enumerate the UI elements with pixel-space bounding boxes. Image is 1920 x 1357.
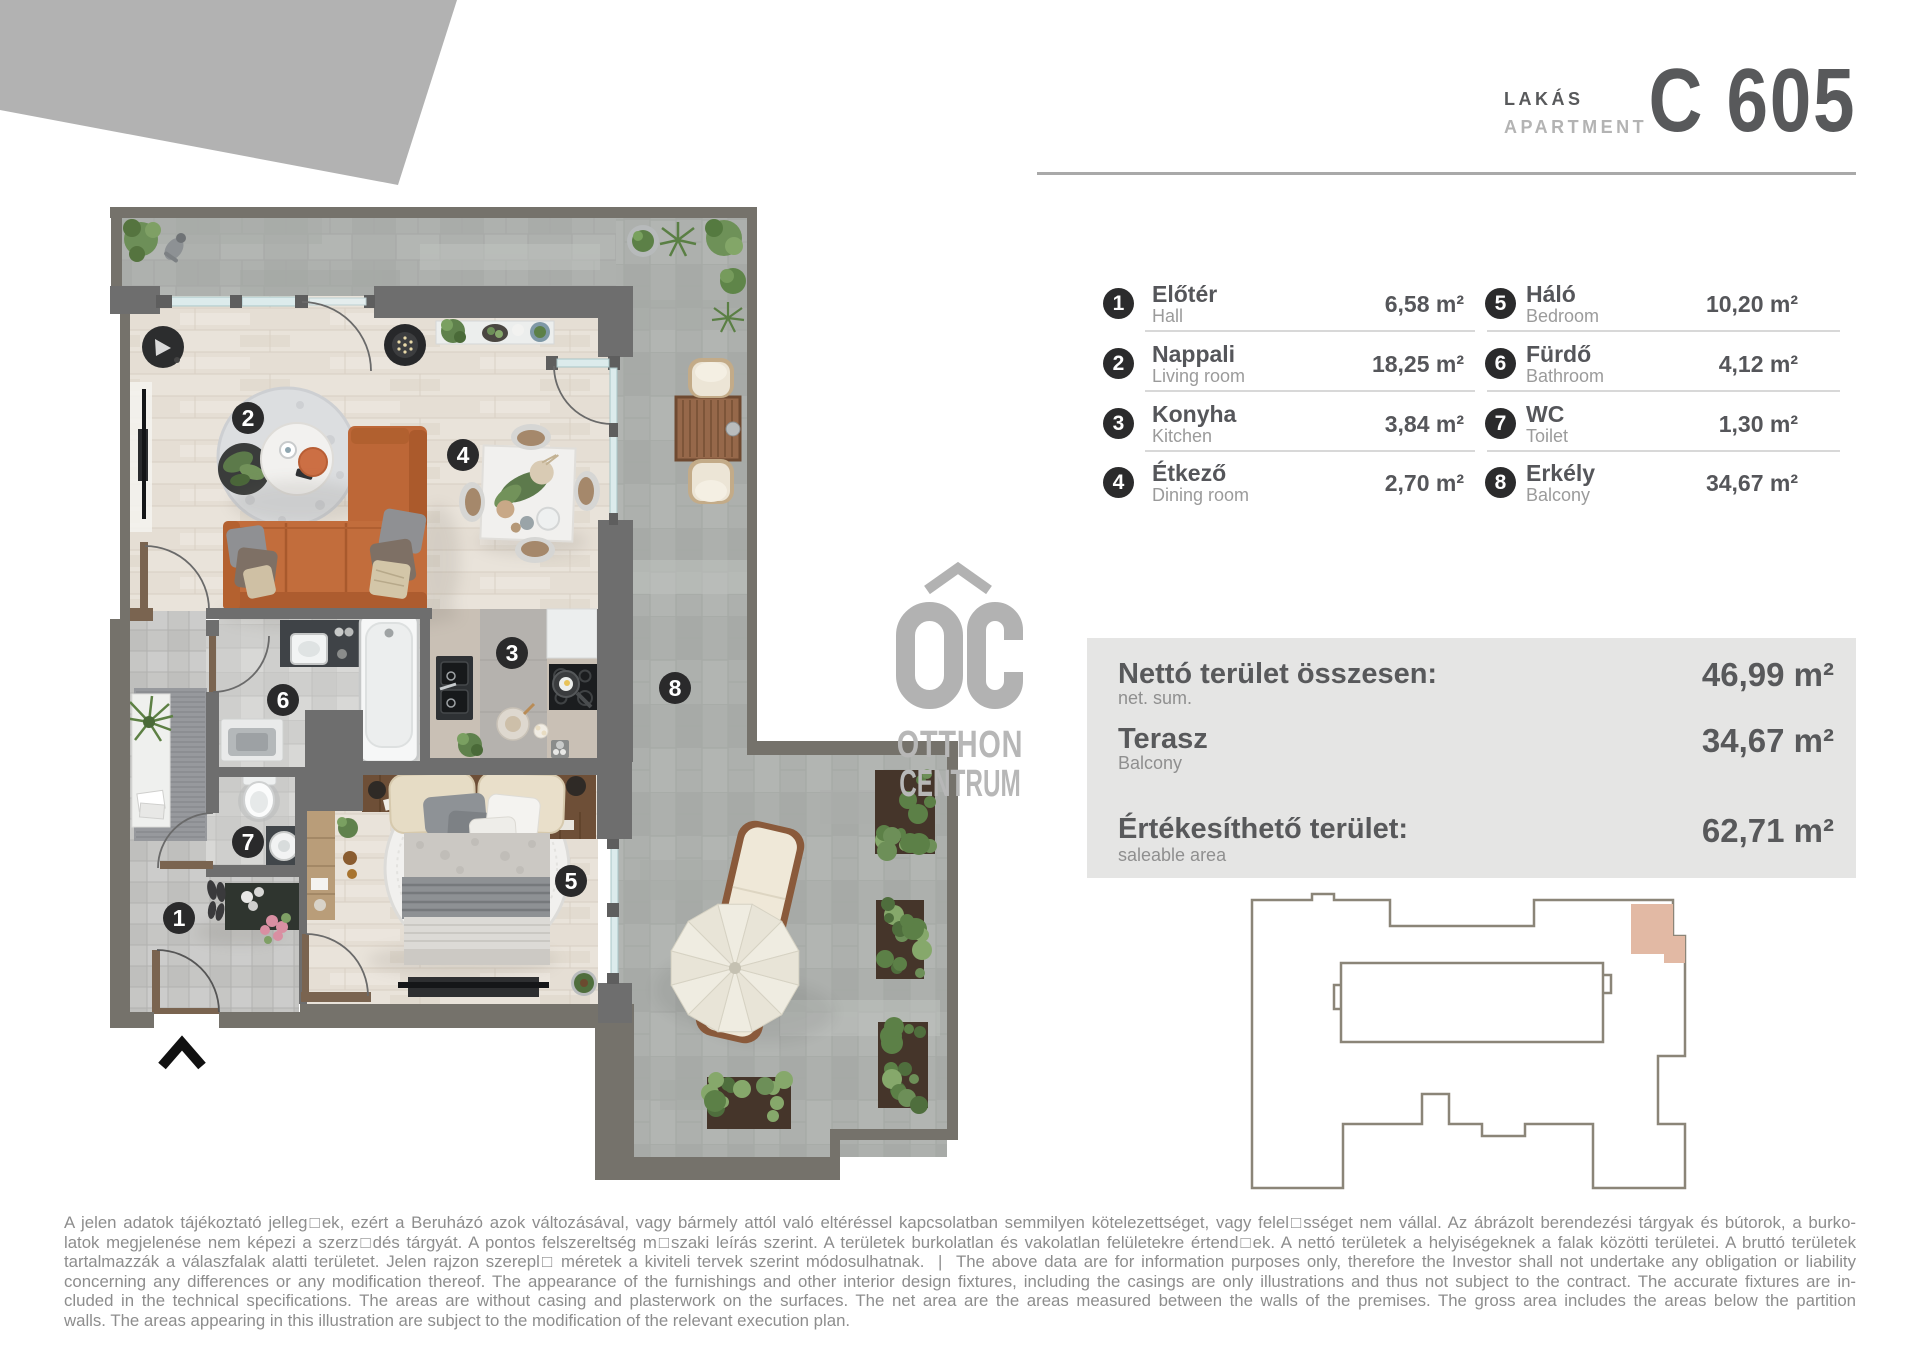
svg-text:8: 8 [669,675,682,701]
svg-text:1: 1 [173,905,186,931]
svg-text:7: 7 [242,829,255,855]
svg-text:CENTRUM: CENTRUM [899,761,1021,804]
svg-text:2: 2 [242,405,255,431]
svg-text:6: 6 [277,687,290,713]
svg-text:3: 3 [506,640,519,666]
svg-text:4: 4 [457,442,470,468]
svg-text:OTTHON: OTTHON [897,723,1023,766]
svg-text:5: 5 [565,868,578,894]
